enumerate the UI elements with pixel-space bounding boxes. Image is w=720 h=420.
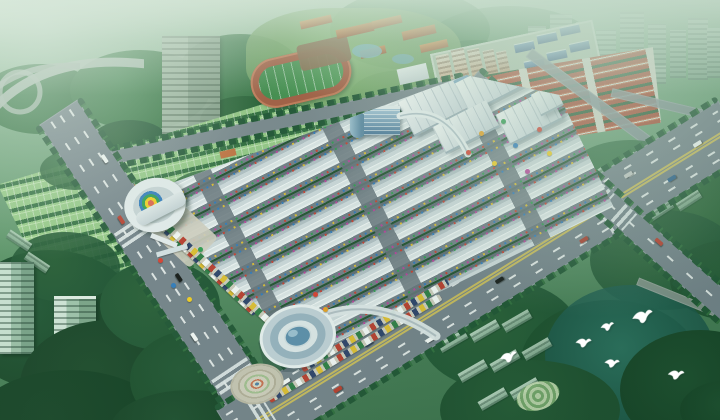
- highrise-tower: [0, 262, 34, 354]
- blue-roof-block: [559, 23, 580, 36]
- blue-roof-block: [569, 40, 590, 53]
- balloon: [525, 169, 530, 174]
- car: [190, 332, 198, 342]
- background-highrise: [707, 28, 720, 78]
- dove-icon: [599, 320, 616, 332]
- balloon: [158, 258, 163, 263]
- blue-roof-block: [536, 31, 557, 44]
- car: [175, 273, 183, 283]
- background-highrise: [670, 30, 686, 78]
- balloon: [492, 161, 497, 166]
- balloon: [547, 151, 552, 156]
- balloon: [187, 297, 192, 302]
- dove-icon: [573, 335, 592, 350]
- balloon: [323, 307, 328, 312]
- balloon: [501, 119, 506, 124]
- campus-pond: [392, 54, 414, 64]
- car: [101, 154, 109, 164]
- balloon: [479, 131, 484, 136]
- campus-pond: [352, 44, 382, 58]
- highrise-slab-building: [162, 36, 220, 134]
- balloon: [513, 143, 518, 148]
- balloon: [171, 283, 176, 288]
- dove-icon: [497, 349, 519, 366]
- balloon: [537, 127, 542, 132]
- car: [667, 174, 677, 182]
- balloon: [198, 247, 203, 252]
- blue-roof-block: [546, 49, 567, 62]
- balloon: [313, 292, 318, 297]
- aerial-masterplan-rendering: [0, 0, 720, 420]
- balloon: [466, 150, 471, 155]
- dove-icon: [665, 367, 686, 383]
- dove-icon: [629, 307, 655, 326]
- background-highrise: [688, 18, 708, 80]
